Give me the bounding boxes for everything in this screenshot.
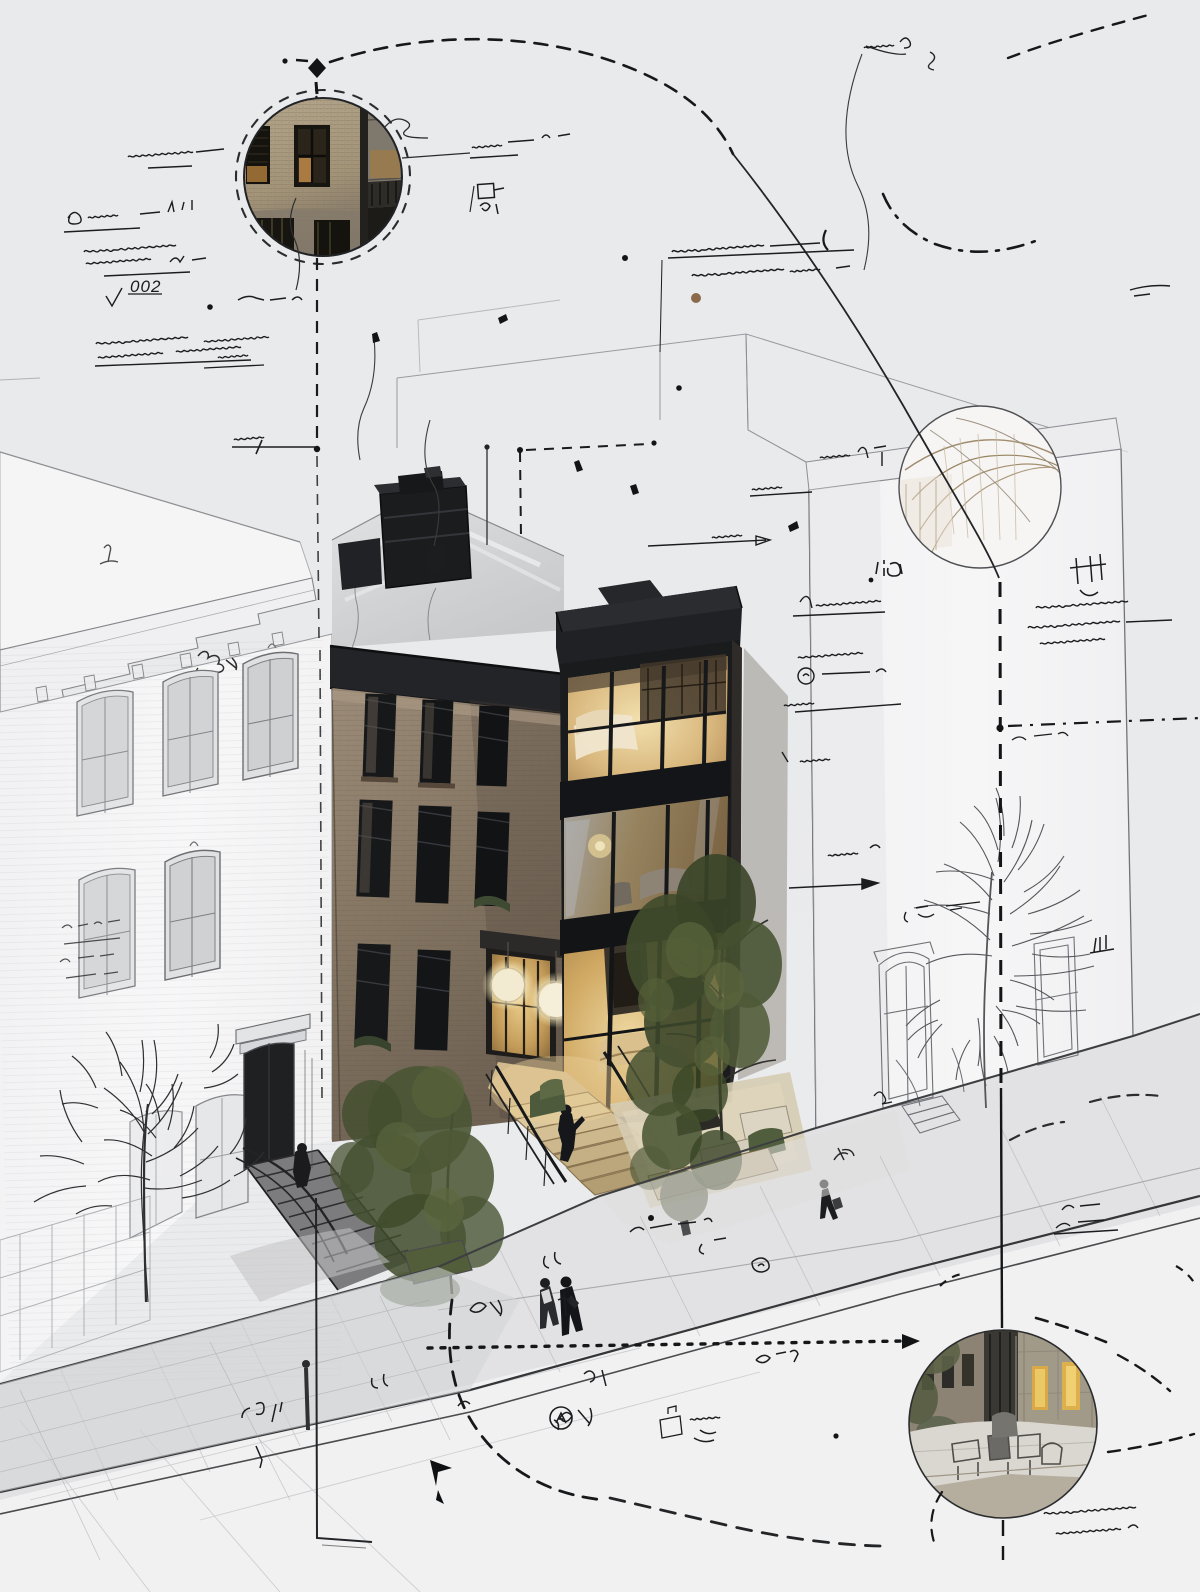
svg-text:002: 002 <box>130 277 161 296</box>
